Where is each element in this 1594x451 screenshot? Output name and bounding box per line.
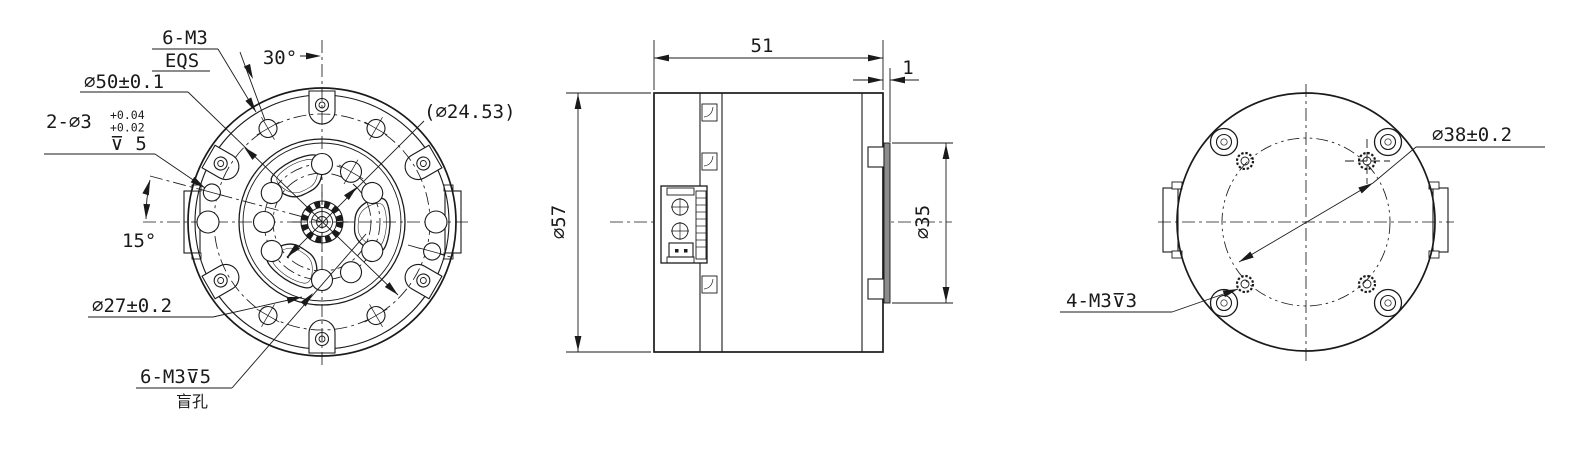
- dim-length-51: 51: [654, 35, 883, 90]
- rear-flange-strip: [884, 143, 890, 303]
- label-tapped-4m3: 4-M3⊽3: [1066, 290, 1137, 312]
- back-view: ⌀38±0.2 4-M3⊽3: [1060, 84, 1545, 362]
- label-ref-dia: (⌀24.53): [424, 101, 516, 123]
- back-m3-holes: [1237, 139, 1390, 292]
- label-m3-count: 6-M3: [162, 27, 208, 49]
- label-bcd38: ⌀38±0.2: [1432, 124, 1512, 146]
- label-angle-30: 30°: [263, 47, 297, 69]
- label-length-51: 51: [751, 35, 774, 57]
- label-blind-note: 盲孔: [176, 392, 208, 411]
- flange-hole-left: [197, 211, 219, 233]
- label-flange-1: 1: [902, 57, 913, 79]
- motor-drawing-canvas: 6-M3 EQS 30° ⌀50±0.1 2-⌀3 +0.04 +0.02 ⊽ …: [0, 0, 1594, 451]
- engineering-drawing-sheet: 6-M3 EQS 30° ⌀50±0.1 2-⌀3 +0.04 +0.02 ⊽ …: [0, 0, 1594, 451]
- label-dia-57: ⌀57: [548, 205, 570, 239]
- flange-hole-right: [425, 211, 447, 233]
- label-blind-callout: 6-M3⊽5: [140, 366, 211, 388]
- label-dowel: 2-⌀3: [46, 111, 92, 133]
- label-bcd27: ⌀27±0.2: [92, 295, 172, 317]
- label-dowel-depth: ⊽ 5: [110, 133, 147, 155]
- label-m3-eqs: EQS: [165, 50, 199, 72]
- dim-dia-35: ⌀35: [892, 143, 953, 303]
- side-view: 51 1 ⌀57 ⌀35: [548, 35, 953, 352]
- label-bcd50: ⌀50±0.1: [84, 71, 164, 93]
- label-dia-35: ⌀35: [912, 205, 934, 239]
- rear-tab-bottom: [868, 279, 884, 299]
- front-view: 6-M3 EQS 30° ⌀50±0.1 2-⌀3 +0.04 +0.02 ⊽ …: [44, 27, 516, 411]
- connector: [661, 186, 707, 263]
- dim-dia-57: ⌀57: [548, 93, 651, 352]
- label-angle-15: 15°: [122, 230, 156, 252]
- rear-tab-top: [868, 147, 884, 167]
